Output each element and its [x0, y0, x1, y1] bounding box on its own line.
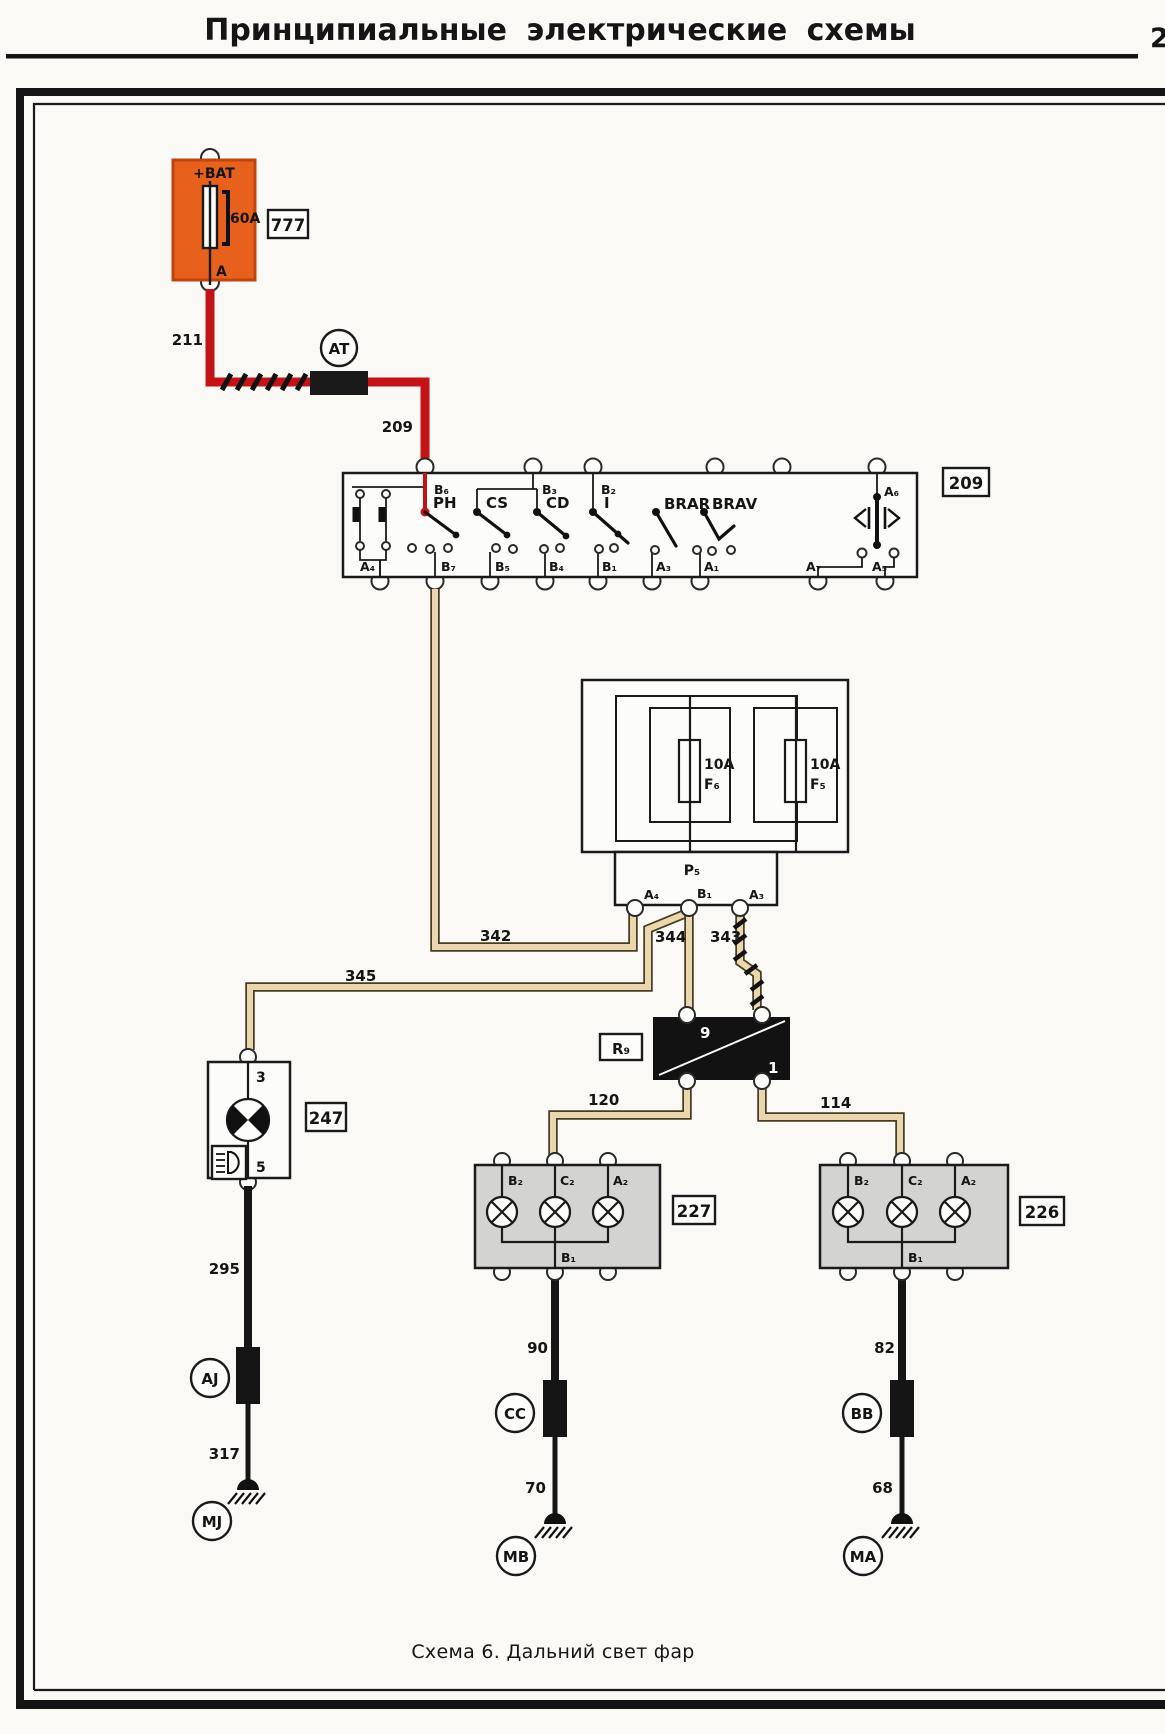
wire-343-label: 343	[710, 928, 741, 946]
ground-ma-label: MA	[850, 1548, 877, 1566]
headlight-block-226: B₂ C₂ A₂ B₁ 226	[820, 1153, 1064, 1380]
ground-chain-right: 82 BB 68 MA	[843, 1339, 919, 1575]
wire-82-label: 82	[874, 1339, 895, 1357]
bat-label: +BAT	[193, 166, 235, 182]
t-c2: C₂	[908, 1173, 923, 1188]
terminal-3: 3	[256, 1070, 266, 1086]
ref-777: 777	[271, 216, 305, 235]
wire-209-label: 209	[382, 418, 413, 436]
ground-mj-label: MJ	[202, 1513, 223, 1531]
t-b1: B₁	[561, 1250, 576, 1265]
terminal-b5: B₅	[495, 559, 510, 574]
svg-text:I: I	[604, 494, 610, 512]
p5-a3: A₃	[749, 887, 764, 902]
f6-label: F₆	[704, 777, 720, 793]
t-a2: A₂	[961, 1173, 976, 1188]
relay-r9: 9 1 R₉	[600, 1007, 790, 1089]
p5-a4: A₄	[644, 887, 659, 902]
f6-rating: 10A	[704, 757, 734, 773]
connector-block-at	[310, 371, 368, 395]
lamps	[487, 1197, 623, 1227]
terminal-b1: B₁	[602, 559, 617, 574]
wire-70-label: 70	[525, 1479, 546, 1497]
page-number: 2	[1150, 23, 1165, 54]
ref-226: 226	[1025, 1203, 1059, 1222]
wire-90-label: 90	[527, 1339, 548, 1357]
relay-pin-9: 9	[700, 1024, 710, 1042]
wire-211-label: 211	[172, 331, 203, 349]
ref-r9: R₉	[612, 1040, 630, 1058]
wire-68-label: 68	[872, 1479, 893, 1497]
wire-344-label: 344	[655, 928, 686, 946]
ref-247: 247	[309, 1109, 343, 1128]
switch-block-209: B₆ B₃ B₂ A₆ A₄ B₇ B₅ B₄ B₁ A₃ A₁ A₇ A₅	[343, 459, 989, 590]
t-b2: B₂	[854, 1173, 869, 1188]
connector-at-label: AT	[329, 340, 350, 358]
page-title: Принципиальные электрические схемы	[204, 13, 916, 48]
f5-rating: 10A	[810, 757, 840, 773]
ground-chain-middle: 90 CC 70 MB	[496, 1339, 572, 1575]
relay-pin-1: 1	[768, 1059, 778, 1077]
ref-209: 209	[949, 474, 983, 493]
lamps	[833, 1197, 970, 1227]
terminal-a1: A₁	[704, 559, 719, 574]
svg-text:BRAV: BRAV	[712, 495, 758, 513]
battery-feed-wires: AT 211 209	[172, 289, 425, 464]
ground-symbol-mb	[535, 1513, 572, 1538]
tan-wires	[250, 589, 900, 1157]
connector-block-bb	[890, 1380, 914, 1437]
t-a2: A₂	[613, 1173, 628, 1188]
fuse-rating: 60A	[230, 211, 260, 227]
connector-block-cc	[543, 1380, 567, 1437]
high-beam-icon	[212, 1146, 246, 1179]
manual-page: Принципиальные электрические схемы 2 +BA…	[0, 0, 1165, 1734]
t-b2: B₂	[508, 1173, 523, 1188]
p5-b1: B₁	[697, 886, 712, 901]
t-c2: C₂	[560, 1173, 575, 1188]
connector-block-aj	[236, 1347, 260, 1404]
terminal-b7: B₇	[441, 559, 456, 574]
connector-aj-label: AJ	[201, 1370, 218, 1388]
wire-317-label: 317	[209, 1445, 240, 1463]
p5-label: P₅	[684, 863, 700, 879]
battery-fuse-777: +BAT 60A A 777	[173, 149, 308, 291]
ground-symbol-ma	[882, 1513, 919, 1538]
ground-mb-label: MB	[503, 1548, 529, 1566]
fuse-box: 10A F₆ 10A F₅	[582, 680, 848, 852]
indicator-unit-247: 3 5 247	[208, 1049, 346, 1190]
connector-cc-label: CC	[504, 1405, 526, 1423]
wire-295-label: 295	[209, 1260, 240, 1278]
wire-120-label: 120	[588, 1091, 619, 1109]
headlight-block-227: B₂ C₂ A₂ B₁ 227	[475, 1153, 715, 1380]
f5-label: F₅	[810, 777, 826, 793]
t-b1: B₁	[908, 1250, 923, 1265]
connector-bb-label: BB	[851, 1405, 874, 1423]
svg-text:PH: PH	[433, 494, 457, 512]
svg-text:CS: CS	[486, 494, 508, 512]
ground-symbol-mj	[228, 1479, 265, 1504]
p5-connector: P₅ A₄ B₁ A₃	[615, 852, 777, 916]
terminal-a3: A₃	[656, 559, 671, 574]
wire-114-label: 114	[820, 1094, 851, 1112]
terminal-5: 5	[256, 1160, 266, 1176]
svg-text:CD: CD	[546, 494, 569, 512]
wire-345-label: 345	[345, 967, 376, 985]
ref-227: 227	[677, 1202, 711, 1221]
terminal-a4: A₄	[360, 559, 375, 574]
terminal-a6: A₆	[884, 484, 899, 499]
header-rule	[6, 54, 1138, 59]
wire-342-label: 342	[480, 927, 511, 945]
fuse-out-label: A	[216, 264, 227, 280]
diagram-caption: Схема 6. Дальний свет фар	[411, 1641, 694, 1663]
ground-chain-left: 295 AJ 317 MJ	[191, 1186, 265, 1540]
terminal-b4: B₄	[549, 559, 564, 574]
